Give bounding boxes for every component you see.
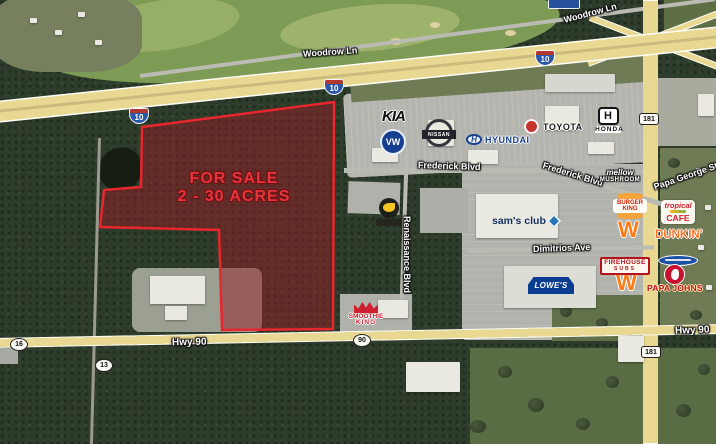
bww-circle xyxy=(379,198,399,218)
route-181-shield-south: 181 xyxy=(641,346,661,358)
nissan-wordmark: NISSAN xyxy=(428,132,450,138)
shield-number: 10 xyxy=(135,113,144,122)
for-sale-label: FOR SALE 2 - 30 ACRES xyxy=(158,170,310,206)
shield-number: 16 xyxy=(15,341,23,348)
pond xyxy=(95,144,146,193)
firehouse-line2: SUBS xyxy=(602,267,648,272)
hyundai-logo: H HYUNDAI xyxy=(466,134,530,145)
toyota-wordmark: TOYOTA xyxy=(543,122,583,132)
mellow-mushroom-logo: mellow MUSHROOM xyxy=(598,169,642,184)
tree xyxy=(576,418,590,430)
honda-h: H xyxy=(604,110,612,122)
tree xyxy=(498,366,512,378)
smoothie-king-logo: SMOOTHIE KING xyxy=(345,301,387,326)
tree xyxy=(606,376,619,388)
burger-king-wordmark: BURGER KING xyxy=(613,199,647,213)
nissan-bar: NISSAN xyxy=(422,130,456,139)
commercial-building-east xyxy=(698,94,714,116)
chicken-silhouette xyxy=(671,269,679,280)
highway-181-road xyxy=(643,0,658,444)
tree xyxy=(528,398,544,412)
tree xyxy=(470,420,486,433)
buffalo-wild-wings-logo xyxy=(376,198,402,226)
firehouse-subs-logo: FIREHOUSE SUBS xyxy=(600,257,650,275)
house xyxy=(78,12,85,17)
house xyxy=(705,205,711,210)
lowes-logo: LOWE'S xyxy=(528,277,574,294)
hospital-building xyxy=(150,276,205,304)
shield-number: 13 xyxy=(100,362,108,369)
for-sale-line2: 2 - 30 ACRES xyxy=(158,188,310,206)
shield-number: 10 xyxy=(541,55,550,64)
small-lot xyxy=(420,188,468,233)
golf-sand-bunker xyxy=(505,30,516,36)
office-building xyxy=(406,362,460,392)
bww-banner xyxy=(376,219,402,226)
house xyxy=(95,40,102,45)
house xyxy=(706,285,712,290)
golf-sand-bunker xyxy=(430,22,440,28)
road-label-renaissance: Renaissance Blvd xyxy=(402,216,412,293)
vw-monogram: VW xyxy=(386,137,401,147)
vw-logo: VW xyxy=(380,129,406,155)
route-13-trail xyxy=(90,138,101,444)
tropical-line1: tropical xyxy=(661,202,695,209)
for-sale-line1: FOR SALE xyxy=(158,170,310,188)
interstate-10-shield: 10 xyxy=(324,79,344,95)
papa-johns-logo: PAPA JOHNS xyxy=(647,283,703,293)
dunkin-logo: DUNKIN' xyxy=(655,229,702,241)
honda-logo: H HONDA xyxy=(595,107,621,133)
tree xyxy=(668,158,680,168)
kia-logo: KIA xyxy=(382,108,405,125)
residential-area-nw xyxy=(0,0,142,72)
hospital-annex xyxy=(165,306,187,320)
tree xyxy=(690,310,702,320)
tropical-smoothie-cafe-logo: tropical CAFE xyxy=(661,200,695,224)
honda-emblem: H xyxy=(598,107,619,125)
road-label-frederick-w: Frederick Blvd xyxy=(418,160,481,172)
tropical-line2: CAFE xyxy=(661,214,695,222)
shield-number: 90 xyxy=(358,337,366,344)
house xyxy=(698,245,704,250)
route-16-shield: 16 xyxy=(10,338,28,351)
toyota-emblem xyxy=(524,119,539,134)
burger-king-line2: KING xyxy=(613,206,647,212)
mellow-line2: MUSHROOM xyxy=(598,177,642,184)
shield-number: 10 xyxy=(330,84,339,93)
road-label-hwy90-e: Hwy 90 xyxy=(675,324,710,336)
interstate-10-shield: 10 xyxy=(129,108,149,124)
shield-number: 181 xyxy=(643,116,655,123)
blue-oval-script xyxy=(665,259,691,261)
tree xyxy=(676,404,691,417)
honda-wordmark: HONDA xyxy=(595,126,621,133)
route-90-shield: 90 xyxy=(353,334,371,347)
road-label-hwy90-w: Hwy 90 xyxy=(172,337,207,349)
smoothie-king-crown-icon xyxy=(354,301,378,313)
highway-sign-partial xyxy=(548,0,580,9)
sams-club-diamond-icon xyxy=(547,214,561,228)
house xyxy=(30,18,37,23)
burger-king-logo: BURGER KING xyxy=(612,193,648,219)
nissan-logo: NISSAN xyxy=(425,119,453,147)
tree xyxy=(698,364,710,375)
retail-building xyxy=(545,74,615,92)
aerial-map: FOR SALE 2 - 30 ACRES Woodrow Ln Woodrow… xyxy=(0,0,716,444)
shield-number: 181 xyxy=(645,349,657,356)
lowes-wordmark: LOWE'S xyxy=(534,281,567,290)
route-181-shield-north: 181 xyxy=(639,113,659,125)
bww-wings-icon xyxy=(383,203,395,212)
red-chicken-roundel-logo xyxy=(664,264,685,285)
road-label-dimitrios: Dimitrios Ave xyxy=(533,242,591,254)
mellow-line1: mellow xyxy=(598,169,642,177)
grass-south-of-hwy90 xyxy=(470,348,716,444)
house xyxy=(55,30,62,35)
hyundai-emblem: H xyxy=(466,134,482,145)
whataburger-logo: W xyxy=(618,217,639,243)
hyundai-wordmark: HYUNDAI xyxy=(485,135,530,145)
honda-dealership-building xyxy=(588,142,614,154)
route-13-shield: 13 xyxy=(95,359,113,372)
sams-club-logo: sam's club xyxy=(492,215,559,227)
smoothie-king-line2: KING xyxy=(345,320,387,326)
sams-club-wordmark: sam's club xyxy=(492,215,546,227)
toyota-logo: TOYOTA xyxy=(524,119,583,134)
